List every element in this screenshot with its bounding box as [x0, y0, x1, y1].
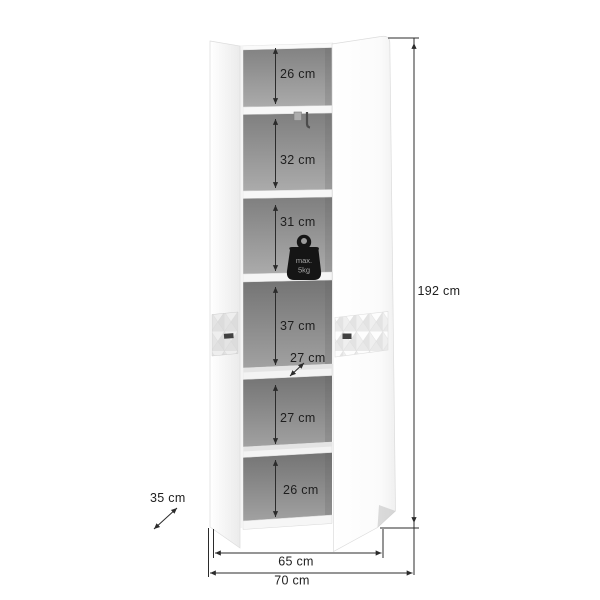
shelf [243, 190, 332, 199]
left-door [210, 41, 240, 548]
depth-label: 35 cm [150, 491, 186, 505]
outer-width-label: 70 cm [274, 574, 310, 588]
section-height-label-4: 37 cm [280, 319, 316, 333]
section-height-label-1: 26 cm [280, 67, 316, 81]
kettlebell-ring-hole [301, 238, 307, 244]
shelf-depth-label: 27 cm [290, 351, 326, 365]
section-height-label-5: 27 cm [280, 411, 316, 425]
right-door-panel [332, 36, 396, 551]
section-height-label-6: 26 cm [283, 483, 319, 497]
depth-dimension: 35 cm [150, 491, 186, 529]
interior-section [243, 113, 332, 191]
left-door-handle [224, 333, 234, 339]
section-height-label-3: 31 cm [280, 215, 316, 229]
section-height-label-2: 32 cm [280, 153, 316, 167]
max-load-text-line1: max. [296, 256, 312, 265]
left-door-panel [210, 41, 240, 548]
diagram-canvas: max. 5kg 26 cm 32 cm 31 cm 37 cm 27 cm 2… [0, 0, 600, 600]
shelf [243, 106, 332, 115]
max-load-text-line2: 5kg [298, 266, 310, 275]
right-door-handle [343, 334, 352, 340]
carcass-edge [240, 46, 243, 528]
cabinet-illustration: max. 5kg [210, 36, 396, 551]
inner-width-label: 65 cm [278, 555, 314, 569]
right-door [332, 36, 396, 551]
depth-arrow [154, 508, 177, 529]
height-label: 192 cm [418, 284, 461, 298]
dimension-diagram: max. 5kg 26 cm 32 cm 31 cm 37 cm 27 cm 2… [0, 0, 600, 600]
